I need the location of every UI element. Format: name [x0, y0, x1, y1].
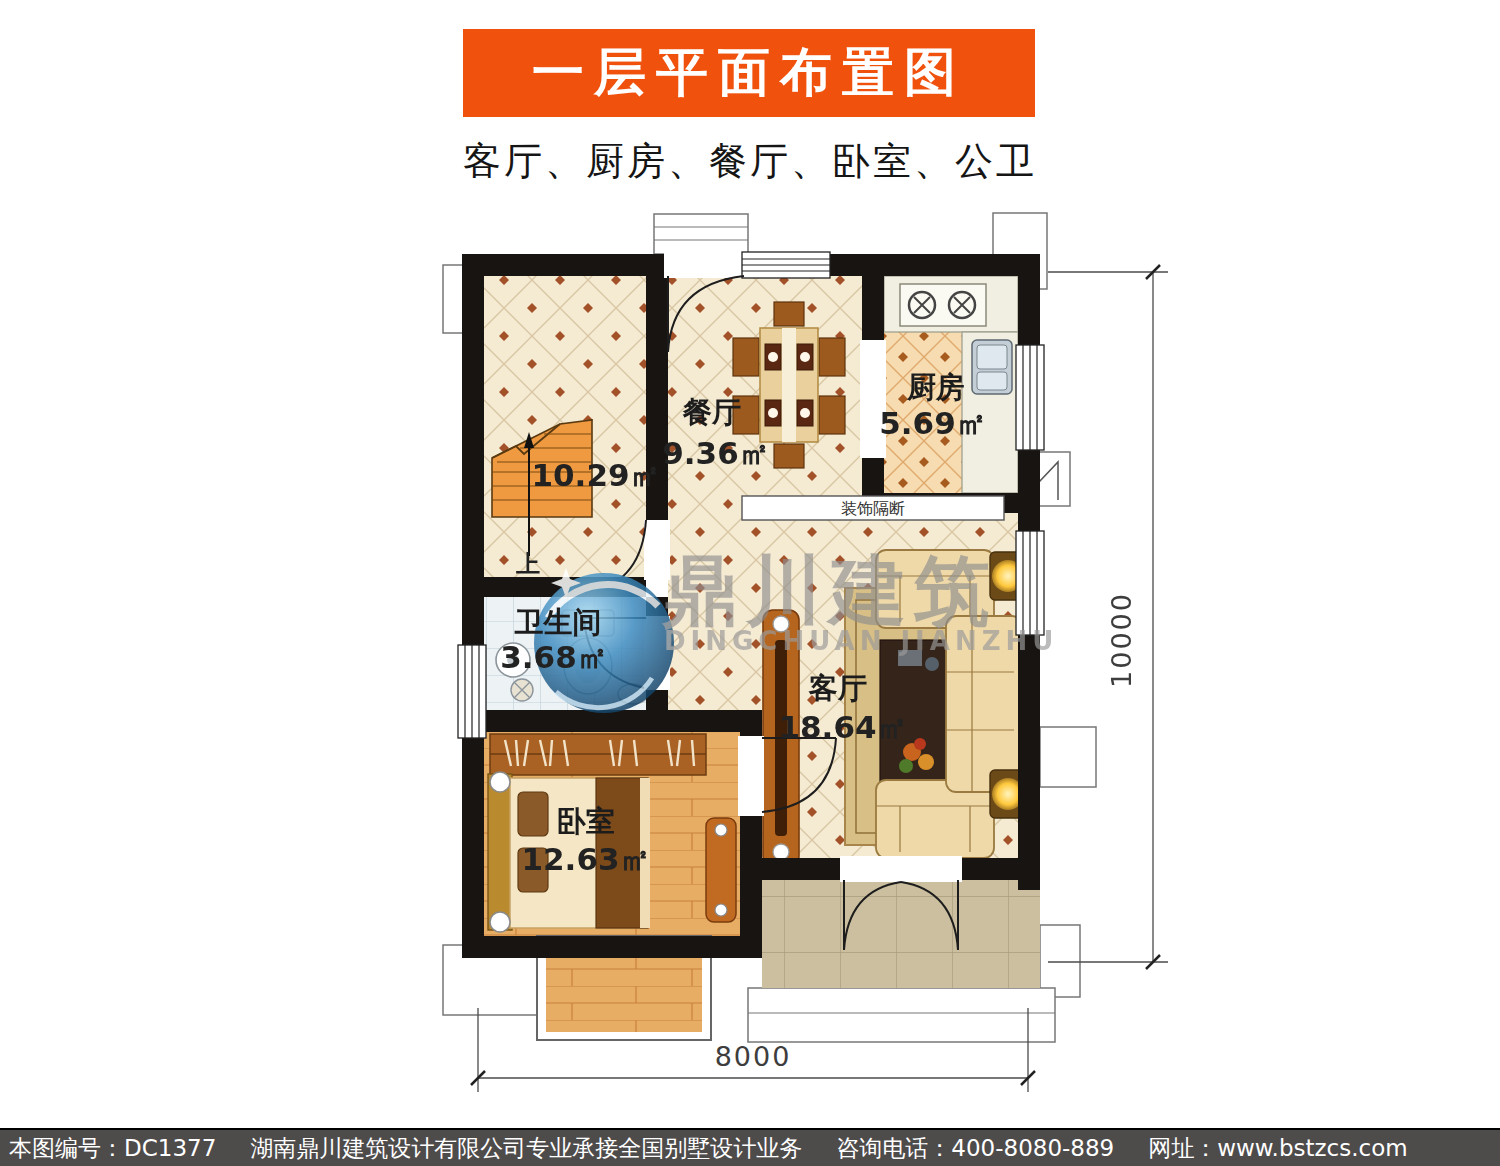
window-kitchen [1016, 345, 1044, 450]
balcony-floor [546, 958, 702, 1032]
bedroom-label: 卧室 [557, 804, 615, 838]
pier-right [1040, 727, 1096, 787]
footer-plan-number: 本图编号：DC1377 [9, 1133, 216, 1164]
watermark-cn: 鼎川建筑 [661, 546, 998, 635]
partition-label-box: 装饰隔断 [742, 496, 1004, 520]
wardrobe [490, 734, 706, 775]
bedside-lamp-icon [490, 912, 510, 932]
dimension-right: 10000 [1048, 265, 1168, 969]
dining-area: 9.36㎡ [662, 435, 770, 471]
stove-icon [900, 284, 986, 326]
footer-company: 湖南鼎川建筑设计有限公司专业承接全国别墅设计业务 [250, 1133, 802, 1164]
porch-floor [762, 880, 1040, 988]
bathroom-area: 3.68㎡ [500, 639, 608, 675]
stairwell-area: 10.29㎡ [531, 457, 660, 493]
floor-plan-drawing: 装饰隔断 鼎川建筑 DINGCHUAN JIANZHU 餐厅 9.36㎡ 厨房 … [0, 0, 1500, 1166]
window-dining [742, 252, 830, 278]
sink-icon [972, 340, 1012, 394]
bedroom-area: 12.63㎡ [521, 841, 650, 877]
pillow [518, 792, 548, 836]
footer-phone: 咨询电话：400-8080-889 [836, 1133, 1114, 1164]
dim-height-value: 10000 [1106, 592, 1137, 688]
bedside-lamp-icon [490, 772, 510, 792]
footer-website: 网址：www.bstzcs.com [1148, 1133, 1407, 1164]
dining-label: 餐厅 [682, 395, 741, 429]
kitchen-area: 5.69㎡ [879, 405, 987, 441]
watermark-en: DINGCHUAN JIANZHU [664, 626, 1058, 656]
stairs-up-label: 上 [516, 550, 540, 578]
bathroom-label: 卫生间 [515, 605, 602, 639]
eave-above-entry [654, 214, 748, 254]
partition-label: 装饰隔断 [841, 499, 905, 518]
entry-terrace [748, 988, 1055, 1042]
footer-bar: 本图编号：DC1377 湖南鼎川建筑设计有限公司专业承接全国别墅设计业务 咨询电… [0, 1128, 1500, 1166]
step-bottom-right [1040, 925, 1080, 997]
window-bathroom [458, 645, 486, 738]
living-label: 客厅 [808, 671, 867, 705]
floor-plan-page: 一层平面布置图 客厅、厨房、餐厅、卧室、公卫 [0, 0, 1500, 1166]
dim-width-value: 8000 [715, 1041, 792, 1072]
dresser [706, 818, 736, 922]
kitchen-label: 厨房 [906, 370, 965, 404]
living-area: 18.64㎡ [778, 709, 907, 745]
window-living [1016, 531, 1044, 635]
